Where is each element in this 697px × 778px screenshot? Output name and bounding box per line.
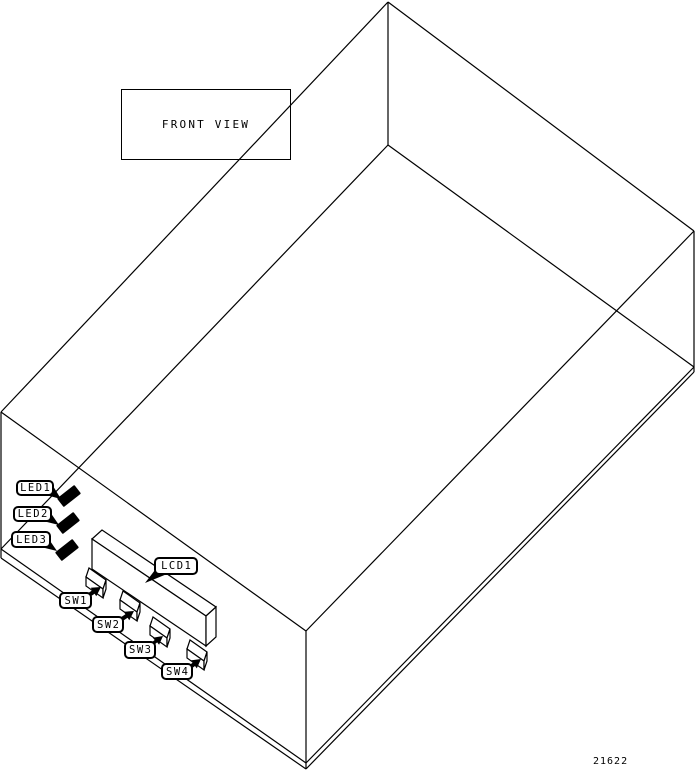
front-view-title-box: FRONT VIEW <box>121 89 291 160</box>
sw1-label: SW1 <box>59 592 92 609</box>
figure-number: 21622 <box>593 756 628 767</box>
lcd1-label: LCD1 <box>154 557 198 575</box>
led1-indicator <box>57 485 81 507</box>
front-view-title: FRONT VIEW <box>162 118 250 131</box>
enclosure-wireframe <box>1 2 694 769</box>
sw4-label: SW4 <box>161 663 193 680</box>
led1-label: LED1 <box>16 480 54 496</box>
sw2-label: SW2 <box>92 616 124 633</box>
diagram-canvas: FRONT VIEW LED1 LED2 LED3 LCD1 SW1 SW2 S… <box>0 0 697 778</box>
led2-indicator <box>56 512 80 534</box>
led2-label: LED2 <box>13 506 52 522</box>
led3-indicator <box>55 539 79 561</box>
wireframe-drawing <box>0 0 697 778</box>
led3-label: LED3 <box>11 531 51 548</box>
sw3-label: SW3 <box>124 641 156 659</box>
